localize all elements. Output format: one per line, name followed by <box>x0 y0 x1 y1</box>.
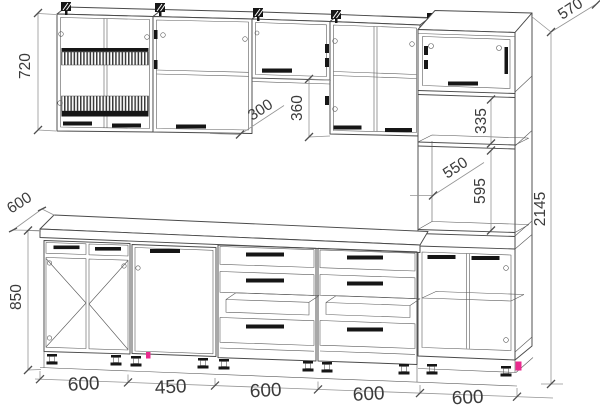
knob <box>47 261 51 265</box>
knob <box>122 264 126 268</box>
dim-label-wall-height: 720 <box>17 53 34 79</box>
open-drawer-box <box>326 296 420 318</box>
hinge <box>325 58 329 67</box>
dish-rack-lower <box>62 96 149 111</box>
hinge <box>325 96 329 105</box>
wall-cabinet-2 <box>153 10 261 134</box>
drawer-handle <box>246 253 284 257</box>
leg-icon <box>131 356 142 367</box>
knob <box>47 336 51 340</box>
dish-rack-upper <box>62 52 149 65</box>
door-handle <box>428 255 456 259</box>
drawing-canvas: 720 600 850 300 360 335 595 550 570 2145… <box>0 0 600 406</box>
hinge <box>154 30 158 39</box>
dish-rack-tray <box>62 111 149 117</box>
wall-cabinet-4 <box>325 15 429 137</box>
dim-label-base-height: 850 <box>8 284 25 310</box>
base-drawer-unit-1 <box>218 245 319 361</box>
dim-label-width-2: 450 <box>154 376 187 399</box>
dim-label-worktop-depth: 600 <box>4 189 35 218</box>
hinge <box>424 60 428 69</box>
accent-marker <box>146 352 151 359</box>
dim-label-niche-height: 595 <box>472 178 489 204</box>
door-handle <box>176 125 206 129</box>
hinge <box>325 44 329 53</box>
door-handle <box>448 82 478 86</box>
door-handle <box>63 122 92 126</box>
dim-label-width-1: 600 <box>67 373 100 396</box>
dish-rack-rail <box>62 48 149 52</box>
base-cabinet-1 <box>44 241 130 355</box>
door-handle <box>472 256 500 260</box>
drawer-handle <box>347 328 383 332</box>
door-handle-vertical <box>505 47 509 74</box>
hinge <box>424 46 428 55</box>
wall-cabinet-dish <box>57 7 162 132</box>
knob <box>136 266 140 270</box>
dim-label-tall-upper-section: 335 <box>473 108 490 134</box>
door-swing-marks <box>46 259 128 350</box>
drawer-handle <box>347 256 383 260</box>
door-handle <box>385 128 412 132</box>
drawer-handle <box>246 325 284 329</box>
drawer-handle <box>347 282 383 286</box>
dim-label-width-3: 600 <box>249 380 282 403</box>
dim-label-width-5: 600 <box>451 387 484 406</box>
leg-icon <box>501 366 512 377</box>
drawer-handle <box>54 246 80 250</box>
wall-cabinets-group <box>57 2 438 136</box>
door-handle <box>150 249 180 253</box>
hinge <box>154 60 158 69</box>
accent-marker <box>516 362 522 371</box>
leg-icon <box>322 362 333 373</box>
door-handle <box>334 126 362 130</box>
drawer-handle <box>246 279 284 283</box>
kitchen-technical-drawing: 720 600 850 300 360 335 595 550 570 2145… <box>0 0 600 406</box>
dim-label-total-height: 2145 <box>532 192 549 226</box>
flap-handle <box>262 69 292 73</box>
open-drawer-box <box>226 293 319 315</box>
leg-icon <box>198 358 209 369</box>
drawer-handle <box>95 247 121 251</box>
leg-icon <box>111 355 122 366</box>
base-cabinet-2 <box>132 245 216 357</box>
leg-icon <box>219 359 230 370</box>
dim-label-hood-height: 360 <box>289 95 306 121</box>
leg-icon <box>47 354 58 365</box>
base-drawer-unit-2 <box>318 248 420 364</box>
leg-icon <box>303 361 314 372</box>
door-handle <box>112 124 141 128</box>
leg-icon <box>399 364 410 375</box>
dim-label-width-4: 600 <box>352 383 385 406</box>
